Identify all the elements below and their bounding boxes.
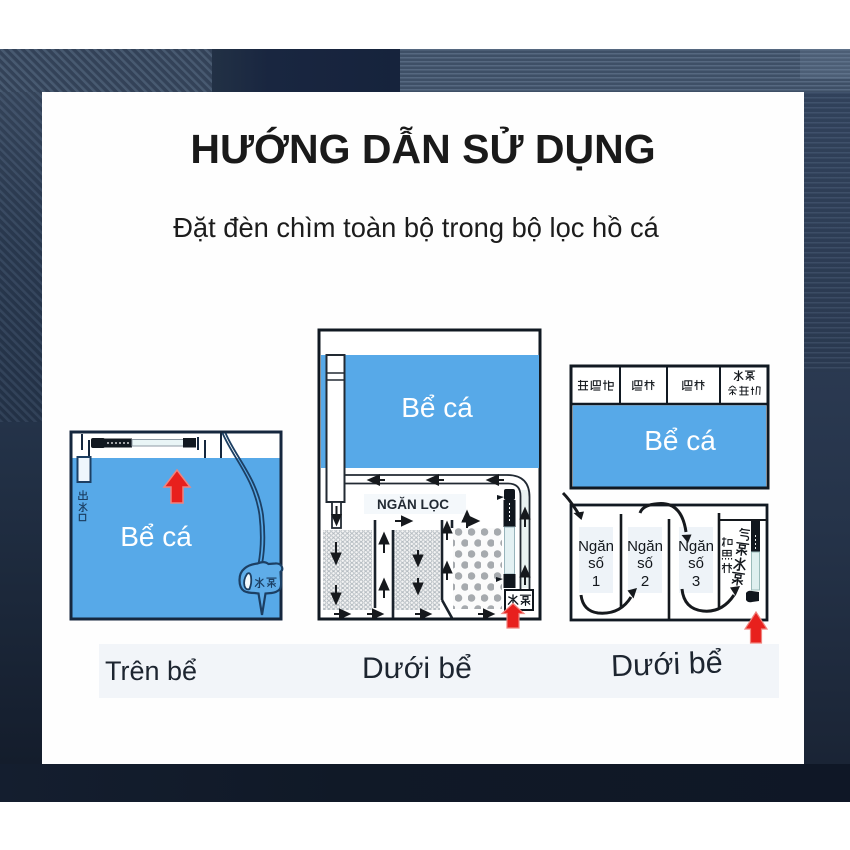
- svg-text:Ngăn: Ngăn: [578, 538, 614, 555]
- svg-text:số: số: [637, 555, 654, 572]
- svg-text:số: số: [588, 555, 605, 572]
- svg-text:Bể cá: Bể cá: [120, 521, 192, 552]
- svg-text:Bể cá: Bể cá: [644, 425, 716, 456]
- svg-text:Bể cá: Bể cá: [401, 392, 473, 423]
- svg-text:Ngăn: Ngăn: [627, 538, 663, 555]
- svg-text:3: 3: [692, 573, 700, 590]
- svg-text:Ngăn: Ngăn: [678, 538, 714, 555]
- svg-text:1: 1: [592, 573, 600, 590]
- svg-text:2: 2: [641, 573, 649, 590]
- svg-text:số: số: [688, 555, 705, 572]
- svg-text:NGĂN LỌC: NGĂN LỌC: [377, 497, 449, 512]
